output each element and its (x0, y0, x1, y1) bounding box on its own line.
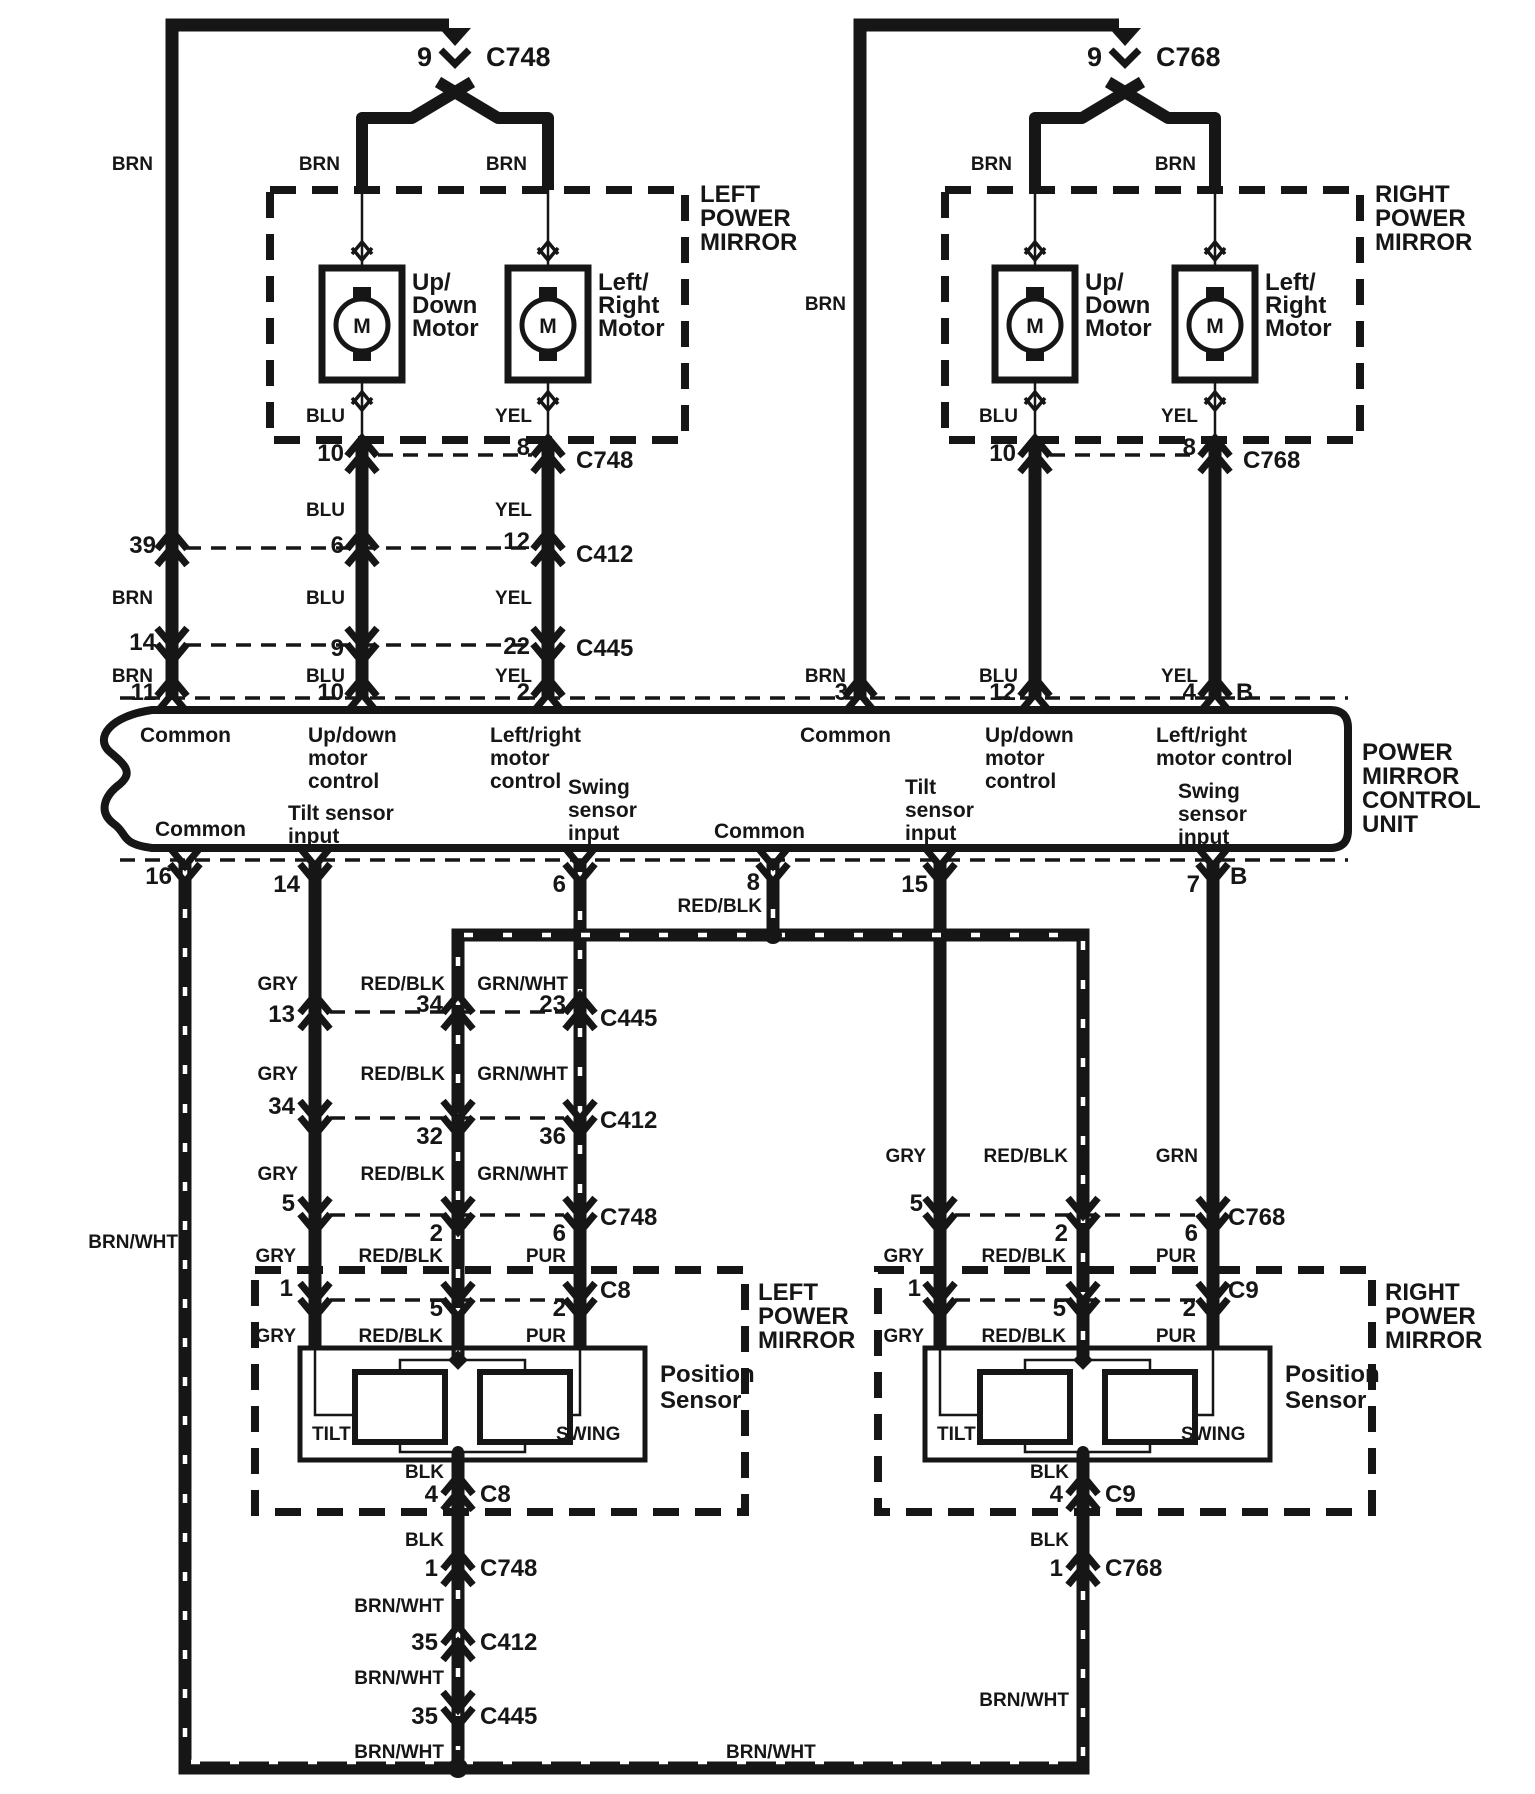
unit-fn-common: Common (714, 820, 805, 843)
unit-title: POWER (1362, 739, 1453, 766)
motor-letter: M (1206, 315, 1224, 338)
unit-fn-tilt: input (905, 822, 956, 845)
left-mirror-lower-title: MIRROR (758, 1327, 855, 1354)
pin-number: 39 (129, 532, 156, 559)
connector-name: C8 (600, 1277, 631, 1304)
pin-number: 2 (1055, 1220, 1068, 1247)
left-mirror-lower-title: LEFT (758, 1279, 818, 1306)
labels-lower-right: GRY RED/BLK GRN 5 2 6 C768 GRY RED/BLK P… (884, 1146, 1483, 1711)
unit-fn-swing: input (568, 822, 619, 845)
right-mirror-title: RIGHT (1375, 181, 1450, 208)
pin-number: 16 (145, 863, 172, 890)
unit-fn-tilt: Tilt (905, 776, 936, 799)
unit-fn-updown: control (985, 770, 1056, 793)
connector-name: C445 (600, 1005, 657, 1032)
left-mirror-title: POWER (700, 205, 791, 232)
unit-fn-swing: sensor (568, 799, 637, 822)
unit-fn-leftright: Left/right (490, 724, 581, 747)
unit-title: MIRROR (1362, 763, 1459, 790)
tilt-potentiometer (980, 1372, 1070, 1442)
connector-dash-lines (120, 455, 1348, 1300)
pin-number: 14 (273, 871, 300, 898)
motor-terminal-top (353, 287, 371, 298)
pin-number: 4 (1050, 1481, 1064, 1508)
connector-chevron-icon (300, 848, 330, 882)
sensor-junction-dot (452, 1446, 464, 1458)
connector-name: C445 (576, 635, 633, 662)
right-mirror-lower-title: POWER (1385, 1303, 1476, 1330)
connector-chevron-icon (758, 848, 788, 882)
connector-chevron-icon (925, 848, 955, 882)
pin-number: 2 (430, 1220, 443, 1247)
wiring-diagram-page: M M M M (0, 0, 1535, 1789)
swing-label: SWING (1181, 1424, 1245, 1445)
connector-name: C9 (1105, 1481, 1136, 1508)
wire-color-label: PUR (1156, 1246, 1196, 1267)
connector-name: C748 (480, 1555, 537, 1582)
c768-connector-label: C768 (1156, 42, 1221, 72)
connector-name: C412 (576, 541, 633, 568)
unit-fn-swing: Swing (568, 776, 630, 799)
pin-number: 3 (835, 679, 848, 706)
unit-fn-common: Common (800, 724, 891, 747)
motor-letter: M (1026, 315, 1044, 338)
leftright-motor-label: Motor (598, 315, 665, 342)
pin-number: 5 (1053, 1295, 1066, 1322)
pin-number: 5 (430, 1295, 443, 1322)
wire-color-label: BLU (979, 406, 1018, 427)
wire-color-label: GRY (256, 1246, 297, 1267)
right-mirror-lower-title: RIGHT (1385, 1279, 1460, 1306)
unit-fn-updown: Up/down (985, 724, 1074, 747)
wire-color-label: BLU (306, 406, 345, 427)
tilt-label: TILT (312, 1424, 351, 1445)
pin-suffix: B (1230, 863, 1247, 890)
position-sensor-title: Position (1285, 1361, 1380, 1388)
connector-name: C768 (1105, 1555, 1162, 1582)
unit-fn-swing: sensor (1178, 803, 1247, 826)
unit-fn-leftright: Left/right (1156, 724, 1247, 747)
motor-terminal-top (1026, 287, 1044, 298)
left-updown-motor: M (322, 268, 402, 380)
connector-chevron-icon (170, 848, 200, 882)
pin-number: 35 (411, 1703, 438, 1730)
connector-name: C412 (600, 1107, 657, 1134)
pin-number: 13 (268, 1001, 295, 1028)
left-mirror-lower-title: POWER (758, 1303, 849, 1330)
unit-fn-swing: Swing (1178, 780, 1240, 803)
pin-number: 36 (539, 1123, 566, 1150)
sensor-junction-dot (1077, 1446, 1089, 1458)
wire-color-label: BRN/WHT (979, 1690, 1069, 1711)
wire-color-label: BRN (112, 154, 153, 175)
wire-color-label: PUR (526, 1326, 566, 1347)
wire-color-label: GRN/WHT (477, 1064, 568, 1085)
pin-number: 35 (411, 1629, 438, 1656)
pin-number: 10 (317, 440, 344, 467)
wire-color-label: YEL (495, 406, 532, 427)
ground-bus-label: BRN/WHT (726, 1742, 816, 1763)
tilt-potentiometer (355, 1372, 445, 1442)
unit-fn-tilt: sensor (905, 799, 974, 822)
right-mirror-lower-title: MIRROR (1385, 1327, 1482, 1354)
pin-number: 11 (131, 679, 156, 706)
right-mirror-title: POWER (1375, 205, 1466, 232)
tilt-label: TILT (937, 1424, 976, 1445)
wire-color-label: PUR (1156, 1326, 1196, 1347)
pin-number: 4 (425, 1481, 439, 1508)
position-sensor-title: Position (660, 1361, 755, 1388)
wire-color-label: RED/BLK (359, 1246, 444, 1267)
pin-number: 6 (331, 532, 344, 559)
pin-number: 2 (1183, 1295, 1196, 1322)
wire-color-label: GRY (258, 1164, 299, 1185)
c768-feed-connector-icon (1109, 28, 1141, 64)
pin-number: 9 (331, 635, 344, 662)
wire-color-label: RED/BLK (359, 1326, 444, 1347)
wire-color-label: YEL (495, 500, 532, 521)
wire-color-label: BLU (306, 588, 345, 609)
pin-number: 34 (416, 991, 443, 1018)
pin-number: 8 (747, 869, 760, 896)
unit-fn-leftright: motor (490, 747, 550, 770)
c748-feed-connector-icon (439, 28, 471, 64)
wire-color-label: BRN (486, 154, 527, 175)
wire-color-label: GRY (258, 974, 299, 995)
labels-control-unit: Common Up/down motor control Left/right … (140, 724, 1481, 917)
c748-connector-label: C748 (486, 42, 551, 72)
wire-color-label: BLK (1030, 1462, 1069, 1483)
pin-number: 32 (416, 1123, 443, 1150)
unit-title: CONTROL (1362, 787, 1481, 814)
pin-number: 2 (517, 679, 530, 706)
wire-color-label: BLK (405, 1462, 444, 1483)
pin-number: 6 (553, 1220, 566, 1247)
pin-number: 8 (1183, 434, 1196, 461)
wire-color-label: RED/BLK (361, 1064, 446, 1085)
pin-number: 1 (280, 1275, 293, 1302)
wire-color-label: BRN/WHT (88, 1232, 178, 1253)
wire-right-feed-brn (860, 25, 1119, 700)
unit-fn-tilt: Tilt sensor (288, 802, 394, 825)
pin-number: 34 (268, 1093, 295, 1120)
motor-terminal-top (1206, 287, 1224, 298)
wire-color-label: YEL (1161, 406, 1198, 427)
position-sensor-title: Sensor (1285, 1387, 1366, 1414)
pin-number: 6 (1185, 1220, 1198, 1247)
ground-bus-junction-dot (448, 1758, 468, 1778)
wire-color-label: GRN/WHT (477, 1164, 568, 1185)
wire-color-label: GRY (884, 1326, 925, 1347)
sensor-junction-diamond (448, 1350, 468, 1370)
sensor-junction-diamond (1073, 1350, 1093, 1370)
right-leftright-motor: M (1175, 268, 1255, 380)
connector-symbols (157, 28, 1230, 1726)
right-updown-motor: M (995, 268, 1075, 380)
unit-fn-swing: input (1178, 826, 1229, 849)
wire-color-label: BRN (112, 588, 153, 609)
wire-color-label: RED/BLK (982, 1326, 1067, 1347)
unit-fn-leftright: control (490, 770, 561, 793)
wire-color-label: RED/BLK (678, 896, 763, 917)
pin-number: 10 (989, 440, 1016, 467)
unit-fn-updown: motor (985, 747, 1045, 770)
wire-color-label: BLK (1030, 1530, 1069, 1551)
wire-color-label: BRN (971, 154, 1012, 175)
right-mirror-title: MIRROR (1375, 229, 1472, 256)
pin-number: 1 (425, 1555, 438, 1582)
pin-number: 6 (553, 871, 566, 898)
unit-fn-updown: motor (308, 747, 368, 770)
position-sensor-title: Sensor (660, 1387, 741, 1414)
connector-name: C412 (480, 1629, 537, 1656)
unit-fn-tilt: input (288, 825, 339, 848)
power-mirror-wiring-diagram: M M M M (0, 0, 1535, 1789)
wire-color-label: BRN (1155, 154, 1196, 175)
unit-fn-updown: control (308, 770, 379, 793)
pin-suffix: B (1236, 679, 1253, 706)
wire-color-label: BLU (306, 500, 345, 521)
wire-color-label: BLK (405, 1530, 444, 1551)
connector-name: C445 (480, 1703, 537, 1730)
unit-fn-common: Common (140, 724, 231, 747)
wire-color-label: PUR (526, 1246, 566, 1267)
wire-color-label: YEL (495, 588, 532, 609)
unit-fn-updown: Up/down (308, 724, 397, 747)
unit-fn-leftright: motor control (1156, 747, 1293, 770)
connector-chevron-icon (565, 848, 595, 882)
pin-number: 2 (553, 1295, 566, 1322)
updown-motor-label: Motor (1085, 315, 1152, 342)
wire-color-label: GRY (886, 1146, 927, 1167)
wire-color-label: GRN (1156, 1146, 1198, 1167)
left-mirror-title: MIRROR (700, 229, 797, 256)
pin-number: 8 (517, 434, 530, 461)
motor-letter: M (353, 315, 371, 338)
connector-name: C748 (576, 447, 633, 474)
unit-fn-common: Common (155, 818, 246, 841)
wire-color-label: BRN (805, 294, 846, 315)
wire-color-label: GRY (884, 1246, 925, 1267)
wire-color-label: RED/BLK (982, 1246, 1067, 1267)
pin-number: 5 (910, 1190, 923, 1217)
motor-terminal-top (539, 287, 557, 298)
wire-color-label: BRN/WHT (354, 1596, 444, 1617)
pin-number: 1 (1050, 1555, 1063, 1582)
pin-number: 14 (129, 629, 156, 656)
wire-color-label: BRN/WHT (354, 1742, 444, 1763)
connector-chevron-icon (1198, 848, 1228, 882)
c748-pin-label: 9 (417, 42, 432, 72)
motor-letter: M (539, 315, 557, 338)
wire-color-label: RED/BLK (984, 1146, 1069, 1167)
pin-number: 4 (1183, 679, 1197, 706)
labels-upper-rows: BLU YEL 10 8 C748 BLU YEL 39 6 12 C412 B… (112, 406, 1301, 706)
wire-color-label: GRY (256, 1326, 297, 1347)
left-leftright-motor: M (508, 268, 588, 380)
connector-name: C9 (1228, 1277, 1259, 1304)
left-mirror-title: LEFT (700, 181, 760, 208)
pin-number: 5 (282, 1190, 295, 1217)
updown-motor-label: Motor (412, 315, 479, 342)
wire-color-label: RED/BLK (361, 1164, 446, 1185)
c768-pin-label: 9 (1087, 42, 1102, 72)
pin-number: 12 (503, 528, 530, 555)
pin-number: 23 (539, 991, 566, 1018)
leftright-motor-label: Motor (1265, 315, 1332, 342)
pin-number: 1 (908, 1275, 921, 1302)
connector-name: C768 (1243, 447, 1300, 474)
pin-number: 7 (1187, 871, 1200, 898)
pin-number: 15 (901, 871, 928, 898)
wire-color-label: BRN/WHT (354, 1668, 444, 1689)
connector-name: C748 (600, 1204, 657, 1231)
swing-label: SWING (556, 1424, 620, 1445)
redblk-junction-dot (764, 926, 782, 944)
unit-title: UNIT (1362, 811, 1418, 838)
wire-color-label: BRN (299, 154, 340, 175)
pin-number: 12 (989, 679, 1016, 706)
connector-name: C8 (480, 1481, 511, 1508)
pin-number: 10 (317, 679, 344, 706)
pin-number: 22 (503, 633, 530, 660)
wire-color-label: GRY (258, 1064, 299, 1085)
connector-name: C768 (1228, 1204, 1285, 1231)
